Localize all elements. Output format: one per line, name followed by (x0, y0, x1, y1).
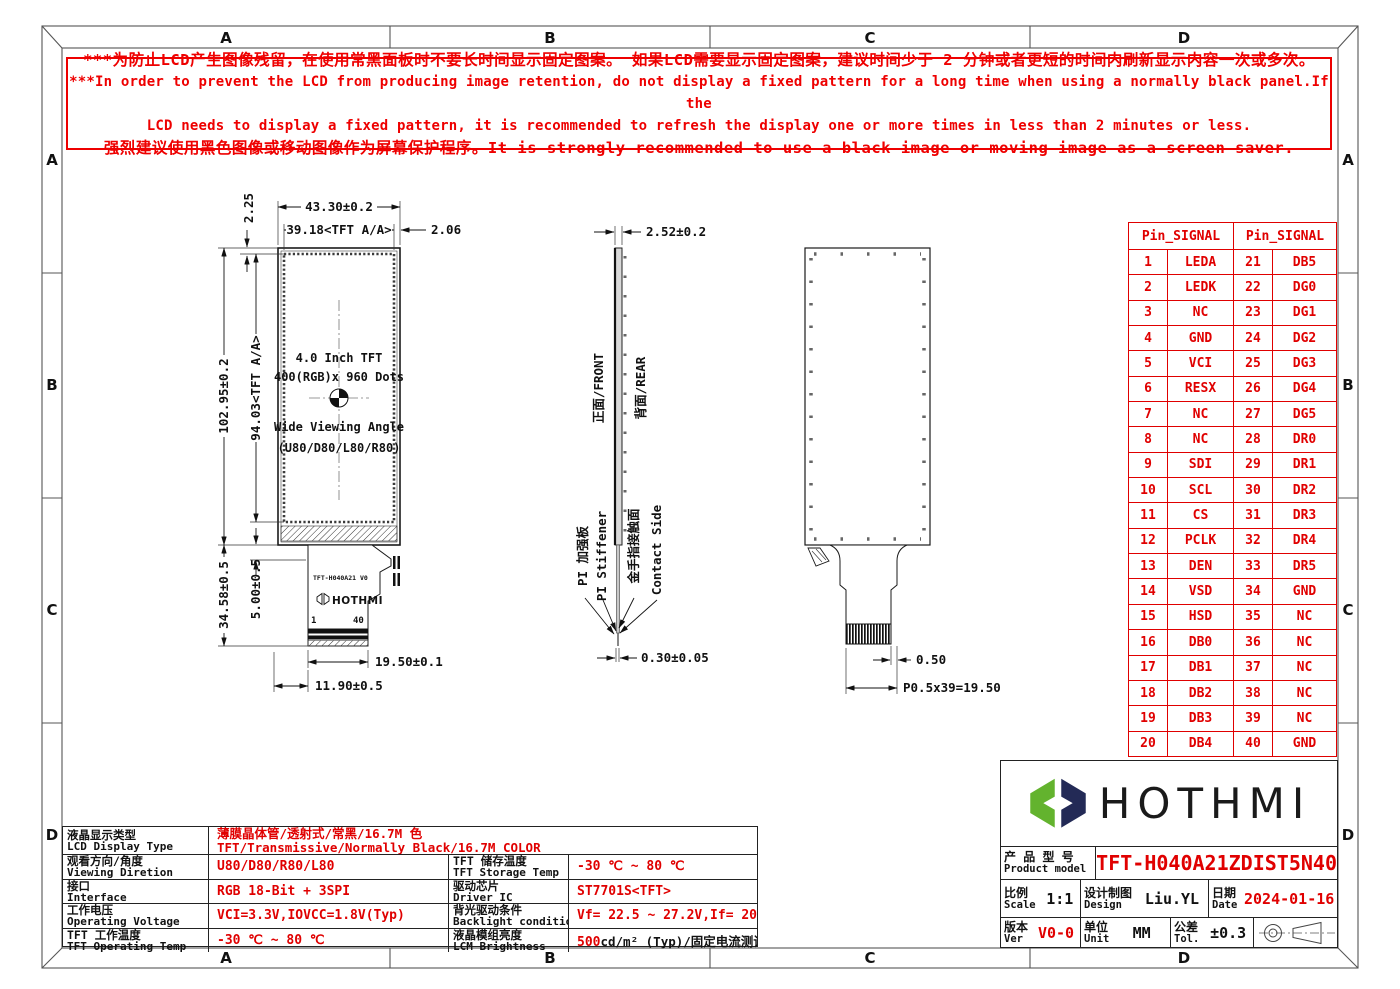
pin-table-row: 13 DEN 33 DR5 (1129, 554, 1336, 579)
ledge-hatch (281, 526, 397, 541)
warning-line-mixed: 强烈建议使用黑色图像或移动图像作为屏幕保护程序。It is strongly r… (68, 137, 1330, 159)
pin-number-cell: 17 (1129, 656, 1168, 680)
pin-signal-cell: NC (1273, 605, 1336, 629)
pin-signal-cell: DR3 (1273, 503, 1336, 527)
product-model-label: 产 品 型 号 Product model (1001, 847, 1096, 879)
pin-signal-cell: SDI (1168, 453, 1234, 477)
pin-number-cell: 19 (1129, 706, 1168, 730)
pin-number-cell: 24 (1234, 326, 1273, 350)
label-cn: 单位 (1084, 921, 1109, 934)
pin40-label: 40 (353, 616, 364, 626)
pin-number-cell: 10 (1129, 478, 1168, 502)
pin-table-row: 15 HSD 35 NC (1129, 605, 1336, 630)
dim-thickness: 2.52±0.2 (646, 224, 706, 239)
spec-label: 观看方向/角度 Viewing Diretion (63, 855, 209, 879)
spec-label-en: Viewing Diretion (67, 867, 208, 879)
spec-row-temperature: TFT 工作温度 TFT Operating Temp -30 ℃ ~ 80 ℃… (63, 929, 757, 953)
pin-number-cell: 5 (1129, 351, 1168, 375)
spec-label-en: TFT Storage Temp (453, 867, 568, 879)
pin-number-cell: 20 (1129, 732, 1168, 756)
pin-signal-cell: DG4 (1273, 377, 1336, 401)
panel-resolution-text: 400(RGB)x 960 Dots (274, 370, 404, 384)
pin-number-cell: 26 (1234, 377, 1273, 401)
label-cn: 公差 (1174, 921, 1199, 934)
spec-row-voltage: 工作电压 Operating Voltage VCI=3.3V,IOVCC=1.… (63, 904, 757, 929)
spec-label-cn: 驱动芯片 (453, 880, 568, 892)
fpc-tail-outline (308, 545, 391, 629)
pin-signal-cell: CS (1168, 503, 1234, 527)
pin-number-cell: 18 (1129, 681, 1168, 705)
panel-viewing-text: Wide Viewing Angle (274, 420, 404, 434)
pin-table-header: Pin_SIGNAL Pin_SIGNAL (1129, 223, 1336, 250)
spec-label-en: LCM Brightness (453, 941, 568, 953)
pin-table-row: 17 DB1 37 NC (1129, 656, 1336, 681)
pin-signal-cell: DG2 (1273, 326, 1336, 350)
center-target-icon (330, 389, 348, 407)
label-en: Unit (1084, 934, 1109, 945)
pin-table-row: 4 GND 24 DG2 (1129, 326, 1336, 351)
spec-value: -30 ℃ ~ 80 ℃ (569, 855, 757, 879)
scale-cell: 比例 Scale 1:1 (1001, 880, 1081, 917)
version-cell: 版本 Ver V0-0 (1001, 918, 1081, 947)
pin-table-row: 6 RESX 26 DG4 (1129, 377, 1336, 402)
pin-number-cell: 25 (1234, 351, 1273, 375)
label-rear-side: 背面/REAR (633, 356, 648, 419)
pin-number-cell: 29 (1234, 453, 1273, 477)
spec-label-cn: 液晶显示类型 (67, 829, 208, 841)
pin-number-cell: 28 (1234, 427, 1273, 451)
spec-label-cn: TFT 工作温度 (67, 929, 208, 941)
label-cn: 比例 (1004, 887, 1036, 900)
label-front-side: 正面/FRONT (591, 353, 606, 423)
warning-line-en: LCD needs to display a fixed pattern, it… (68, 115, 1330, 137)
designer-value: Liu.YL (1136, 890, 1208, 908)
pin-signal-cell: DB1 (1168, 656, 1234, 680)
label-cn: 日期 (1212, 887, 1237, 900)
dim-tail-offset: 11.90±0.5 (315, 678, 383, 693)
rear-fold-notch (808, 548, 829, 566)
pin-signal-cell: DB0 (1168, 630, 1234, 654)
spec-label-en: Backlight conditions (453, 916, 568, 928)
spec-value: RGB 18-Bit + 3SPI (209, 880, 449, 904)
pin-signal-cell: DB4 (1168, 732, 1234, 756)
pin-signal-cell: VSD (1168, 579, 1234, 603)
pin-number-cell: 34 (1234, 579, 1273, 603)
dim-right-margin: 2.06 (431, 222, 461, 237)
label-en: Product model (1004, 864, 1086, 875)
pin-table-row: 7 NC 27 DG5 (1129, 402, 1336, 427)
pin-signal-cell: GND (1168, 326, 1234, 350)
pin-table-row: 20 DB4 40 GND (1129, 732, 1336, 756)
warning-line-en: ***In order to prevent the LCD from prod… (68, 71, 1330, 115)
spec-row-viewing: 观看方向/角度 Viewing Diretion U80/D80/R80/L80… (63, 855, 757, 880)
pin-signal-cell: LEDK (1168, 275, 1234, 299)
rear-view: 0.50 P0.5x39=19.50 (805, 248, 1001, 695)
date-value: 2024-01-16 (1241, 890, 1337, 908)
label-contact-cn: 金手指接触面 (626, 508, 641, 585)
zone-letter: D (46, 826, 58, 844)
spec-label: TFT 工作温度 TFT Operating Temp (63, 929, 209, 953)
spec-label: 背光驱动条件 Backlight conditions (449, 904, 569, 928)
front-view: 4.0 Inch TFT 400(RGB)x 960 Dots Wide Vie… (216, 193, 461, 693)
pin-table-row: 1 LEDA 21 DB5 (1129, 250, 1336, 275)
spec-label-cn: 接口 (67, 880, 208, 892)
pin-number-cell: 31 (1234, 503, 1273, 527)
product-model-row: 产 品 型 号 Product model TFT-H040A21ZDIST5N… (1001, 847, 1337, 880)
dim-height-aa: 94.03<TFT A/A> (248, 335, 263, 440)
spec-label: 接口 Interface (63, 880, 209, 904)
label-en: Design (1084, 900, 1132, 911)
label-contact-en: Contact Side (649, 504, 664, 595)
pin-signal-cell: GND (1273, 732, 1336, 756)
pin-number-cell: 30 (1234, 478, 1273, 502)
pin-signal-cell: NC (1168, 301, 1234, 325)
pin-number-cell: 39 (1234, 706, 1273, 730)
dim-pitch-total: P0.5x39=19.50 (903, 680, 1001, 695)
rear-connector-pads (846, 624, 891, 644)
spec-label: 液晶模组亮度 LCM Brightness (449, 929, 569, 953)
spec-value-text: -30 ℃ ~ 80 ℃ (577, 859, 757, 874)
pin-signal-cell: NC (1168, 427, 1234, 451)
zone-letter: C (46, 601, 57, 619)
brand-name: HOTHMI (1099, 779, 1312, 828)
spec-value: Vf= 22.5 ~ 27.2V,If= 20 mA (569, 904, 757, 928)
pin-signal-cell: DR2 (1273, 478, 1336, 502)
pin-table-row: 19 DB3 39 NC (1129, 706, 1336, 731)
pin-signal-cell: DB3 (1168, 706, 1234, 730)
pin-number-cell: 36 (1234, 630, 1273, 654)
pin-number-cell: 33 (1234, 554, 1273, 578)
spec-label-en: Driver IC (453, 892, 568, 904)
pin-signal-cell: NC (1273, 656, 1336, 680)
spec-label: 工作电压 Operating Voltage (63, 904, 209, 928)
dim-width-total: 43.30±0.2 (305, 199, 373, 214)
pin-signal-cell: VCI (1168, 351, 1234, 375)
spec-label-en: Interface (67, 892, 208, 904)
stiffener-marks (393, 556, 400, 586)
pin-number-cell: 4 (1129, 326, 1168, 350)
pin-table-row: 9 SDI 29 DR1 (1129, 453, 1336, 478)
pin-number-cell: 2 (1129, 275, 1168, 299)
pin-signal-cell: HSD (1168, 605, 1234, 629)
date-cell: 日期 Date 2024-01-16 (1209, 880, 1337, 917)
pin-signal-table: Pin_SIGNAL Pin_SIGNAL 1 LEDA 21 DB5 2 LE… (1128, 222, 1337, 757)
pin-signal-cell: DG1 (1273, 301, 1336, 325)
spec-label-en: Operating Voltage (67, 916, 208, 928)
pin-signal-cell: DR0 (1273, 427, 1336, 451)
spec-value-text: -30 ℃ ~ 80 ℃ (217, 933, 448, 948)
dim-top-margin: 2.25 (241, 193, 256, 223)
zone-letter: A (1342, 151, 1354, 169)
spec-table: 液晶显示类型 LCD Display Type 薄膜晶体管/透射式/常黑/16.… (62, 826, 758, 947)
pin-number-cell: 22 (1234, 275, 1273, 299)
label-en: Scale (1004, 900, 1036, 911)
dim-height-total: 102.95±0.2 (216, 358, 231, 433)
pin-number-cell: 12 (1129, 529, 1168, 553)
spec-label: 驱动芯片 Driver IC (449, 880, 569, 904)
pin-signal-cell: SCL (1168, 478, 1234, 502)
spec-value-text: RGB 18-Bit + 3SPI (217, 884, 448, 899)
fpc-connector-band (308, 629, 368, 634)
pin-signal-cell: GND (1273, 579, 1336, 603)
pin-number-cell: 37 (1234, 656, 1273, 680)
fpc-part-number: TFT-H040A21 V0 (313, 574, 368, 582)
spec-label: TFT 储存温度 TFT Storage Temp (449, 855, 569, 879)
pin-number-cell: 13 (1129, 554, 1168, 578)
pin-signal-cell: NC (1273, 630, 1336, 654)
pin-table-row: 10 SCL 30 DR2 (1129, 478, 1336, 503)
warning-line-cn: ***为防止LCD产生图像残留，在使用常黑面板时不要长时间显示固定图案。 如果L… (68, 49, 1330, 71)
dim-connector-width: 19.50±0.1 (375, 654, 443, 669)
spec-label-en: LCD Display Type (67, 841, 208, 853)
panel-angles-text: (U80/D80/L80/R80) (278, 441, 401, 455)
spec-value: VCI=3.3V,IOVCC=1.8V(Typ) (209, 904, 449, 928)
zone-letter: C (1342, 601, 1353, 619)
projection-symbol-cell (1254, 918, 1337, 947)
pin-table-row: 2 LEDK 22 DG0 (1129, 275, 1336, 300)
title-block: HOTHMI 产 品 型 号 Product model TFT-H040A21… (1000, 760, 1338, 948)
label-en: Date (1212, 900, 1237, 911)
zone-letter: A (220, 29, 232, 47)
pin-number-cell: 6 (1129, 377, 1168, 401)
spec-row-display-type: 液晶显示类型 LCD Display Type 薄膜晶体管/透射式/常黑/16.… (63, 827, 757, 855)
zone-letter: C (864, 949, 875, 967)
pin-header-cell: Pin_SIGNAL (1234, 223, 1336, 249)
fpc-brand-text: HOTHMI (332, 595, 383, 607)
pin-signal-cell: NC (1273, 681, 1336, 705)
spec-value-text: U80/D80/R80/L80 (217, 859, 448, 874)
pin-signal-cell: DR1 (1273, 453, 1336, 477)
pin-number-cell: 1 (1129, 250, 1168, 274)
spec-value: 500 cd/m² (Typ)/固定电流测试 (569, 929, 757, 953)
rear-outline (805, 248, 930, 545)
spec-value-text: ST7701S<TFT> (577, 884, 757, 899)
product-model-value: TFT-H040A21ZDIST5N40 (1096, 847, 1337, 879)
tolerance-cell: 公差 Tol. ±0.3 (1171, 918, 1254, 947)
datasheet-page: A B C D A B C D A B C D A B C D 4.0 Inch (0, 0, 1400, 989)
spec-value: ST7701S<TFT> (569, 880, 757, 904)
pin-number-cell: 40 (1234, 732, 1273, 756)
pin-number-cell: 27 (1234, 402, 1273, 426)
pin-table-row: 18 DB2 38 NC (1129, 681, 1336, 706)
spec-value-text: VCI=3.3V,IOVCC=1.8V(Typ) (217, 908, 448, 923)
label-en: Ver (1004, 934, 1028, 945)
tolerance-value: ±0.3 (1203, 924, 1253, 942)
label-stiffener-cn: PI 加强板 (575, 525, 590, 586)
design-cell: 设计制图 Design Liu.YL (1081, 880, 1209, 917)
zone-letter: D (1342, 826, 1354, 844)
zone-letter: B (46, 376, 57, 394)
pin-signal-cell: DR4 (1273, 529, 1336, 553)
pin-signal-cell: DB5 (1273, 250, 1336, 274)
spec-value-cn: 薄膜晶体管/透射式/常黑/16.7M 色 (217, 827, 757, 841)
zone-letter: C (864, 29, 875, 47)
pin-number-cell: 7 (1129, 402, 1168, 426)
pin-number-cell: 8 (1129, 427, 1168, 451)
label-en: Tol. (1174, 934, 1199, 945)
zone-letter: D (1178, 29, 1190, 47)
company-logo: HOTHMI (1001, 761, 1337, 847)
pin-signal-cell: DG5 (1273, 402, 1336, 426)
version-value: V0-0 (1032, 924, 1080, 942)
pin-number-cell: 9 (1129, 453, 1168, 477)
dim-fpc-thickness: 0.30±0.05 (641, 650, 709, 665)
spec-value: 薄膜晶体管/透射式/常黑/16.7M 色 TFT/Transmissive/No… (209, 827, 757, 854)
spec-value: U80/D80/R80/L80 (209, 855, 449, 879)
pin-signal-cell: NC (1273, 706, 1336, 730)
pin-table-row: 11 CS 31 DR3 (1129, 503, 1336, 528)
projection-symbol-icon (1257, 919, 1337, 947)
pin-signal-cell: LEDA (1168, 250, 1234, 274)
unit-cell: 单位 Unit MM (1081, 918, 1171, 947)
pin-number-cell: 3 (1129, 301, 1168, 325)
pin-signal-cell: DG0 (1273, 275, 1336, 299)
side-fpc-tail (617, 545, 620, 633)
panel-size-text: 4.0 Inch TFT (296, 351, 383, 365)
pin-number-cell: 15 (1129, 605, 1168, 629)
unit-value: MM (1113, 924, 1170, 942)
pin-signal-cell: DR5 (1273, 554, 1336, 578)
pin-number-cell: 32 (1234, 529, 1273, 553)
pin-signal-cell: RESX (1168, 377, 1234, 401)
pin-signal-cell: PCLK (1168, 529, 1234, 553)
pin-table-row: 8 NC 28 DR0 (1129, 427, 1336, 452)
pin1-label: 1 (311, 616, 316, 626)
label-cn: 版本 (1004, 921, 1028, 934)
pin-number-cell: 38 (1234, 681, 1273, 705)
label-stiffener-en: PI Stiffener (594, 510, 609, 601)
dim-pad-pitch: 0.50 (916, 652, 946, 667)
version-unit-tolerance-row: 版本 Ver V0-0 单位 Unit MM 公差 Tol. ±0.3 (1001, 918, 1337, 947)
pin-header-cell: Pin_SIGNAL (1129, 223, 1234, 249)
pin-signal-cell: NC (1168, 402, 1234, 426)
pin-table-body: 1 LEDA 21 DB5 2 LEDK 22 DG0 3 NC 23 DG1 … (1129, 250, 1336, 756)
pin-table-row: 12 PCLK 32 DR4 (1129, 529, 1336, 554)
hothmi-logo-icon (1027, 777, 1089, 831)
pin-table-row: 14 VSD 34 GND (1129, 579, 1336, 604)
pin-signal-cell: DB2 (1168, 681, 1234, 705)
pin-number-cell: 35 (1234, 605, 1273, 629)
zone-letter: D (1178, 949, 1190, 967)
pin-number-cell: 23 (1234, 301, 1273, 325)
spec-row-interface: 接口 Interface RGB 18-Bit + 3SPI 驱动芯片 Driv… (63, 880, 757, 905)
pin-number-cell: 16 (1129, 630, 1168, 654)
pin-number-cell: 21 (1234, 250, 1273, 274)
spec-label: 液晶显示类型 LCD Display Type (63, 827, 209, 854)
pin-signal-cell: DG3 (1273, 351, 1336, 375)
dim-tail-length: 34.58±0.5 (216, 561, 231, 629)
spec-value-en: TFT/Transmissive/Normally Black/16.7M CO… (217, 841, 757, 855)
label-cn: 设计制图 (1084, 887, 1132, 900)
side-view: 2.52±0.2 0.30±0.05 正面/FRONT 背面/REAR PI 加… (575, 224, 709, 665)
scale-design-date-row: 比例 Scale 1:1 设计制图 Design Liu.YL 日期 Date … (1001, 880, 1337, 918)
pin-table-row: 3 NC 23 DG1 (1129, 301, 1336, 326)
dim-ledge: 5.00±0.5 (248, 559, 263, 619)
pin-number-cell: 11 (1129, 503, 1168, 527)
spec-value-text: 500 (577, 935, 600, 950)
rear-fpc-tail (830, 545, 907, 624)
pin-table-row: 16 DB0 36 NC (1129, 630, 1336, 655)
pin-table-row: 5 VCI 25 DG3 (1129, 351, 1336, 376)
zone-letter: A (46, 151, 58, 169)
zone-letter: B (544, 29, 555, 47)
pin-signal-cell: DEN (1168, 554, 1234, 578)
dim-width-aa: 39.18<TFT A/A> (286, 222, 391, 237)
spec-value-text: cd/m² (Typ)/固定电流测试 (600, 931, 757, 950)
scale-value: 1:1 (1040, 890, 1080, 908)
spec-label-cn: 液晶模组亮度 (453, 929, 568, 941)
pin-number-cell: 14 (1129, 579, 1168, 603)
zone-letter: B (1342, 376, 1353, 394)
spec-value-text: Vf= 22.5 ~ 27.2V,If= 20 mA (577, 908, 757, 923)
spec-label-en: TFT Operating Temp (67, 941, 208, 953)
image-retention-warning: ***为防止LCD产生图像残留，在使用常黑面板时不要长时间显示固定图案。 如果L… (66, 57, 1332, 150)
spec-value: -30 ℃ ~ 80 ℃ (209, 929, 449, 953)
